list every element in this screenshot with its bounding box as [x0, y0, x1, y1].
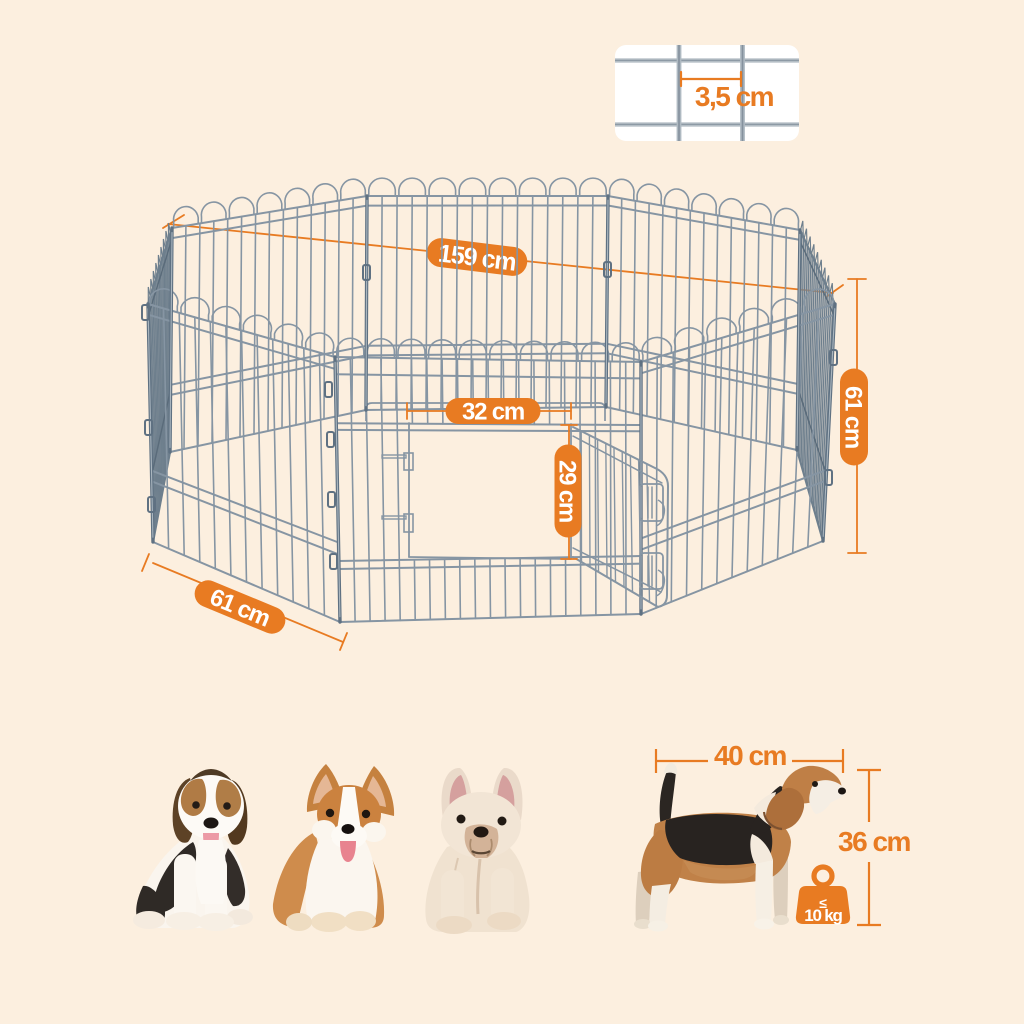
svg-text:36 cm: 36 cm	[838, 826, 910, 857]
svg-text:29 cm: 29 cm	[554, 460, 581, 522]
svg-text:3,5 cm: 3,5 cm	[695, 81, 774, 112]
svg-text:10 kg: 10 kg	[804, 906, 842, 925]
svg-text:61 cm: 61 cm	[840, 386, 867, 448]
svg-text:40 cm: 40 cm	[714, 740, 786, 771]
svg-text:32 cm: 32 cm	[462, 399, 524, 426]
